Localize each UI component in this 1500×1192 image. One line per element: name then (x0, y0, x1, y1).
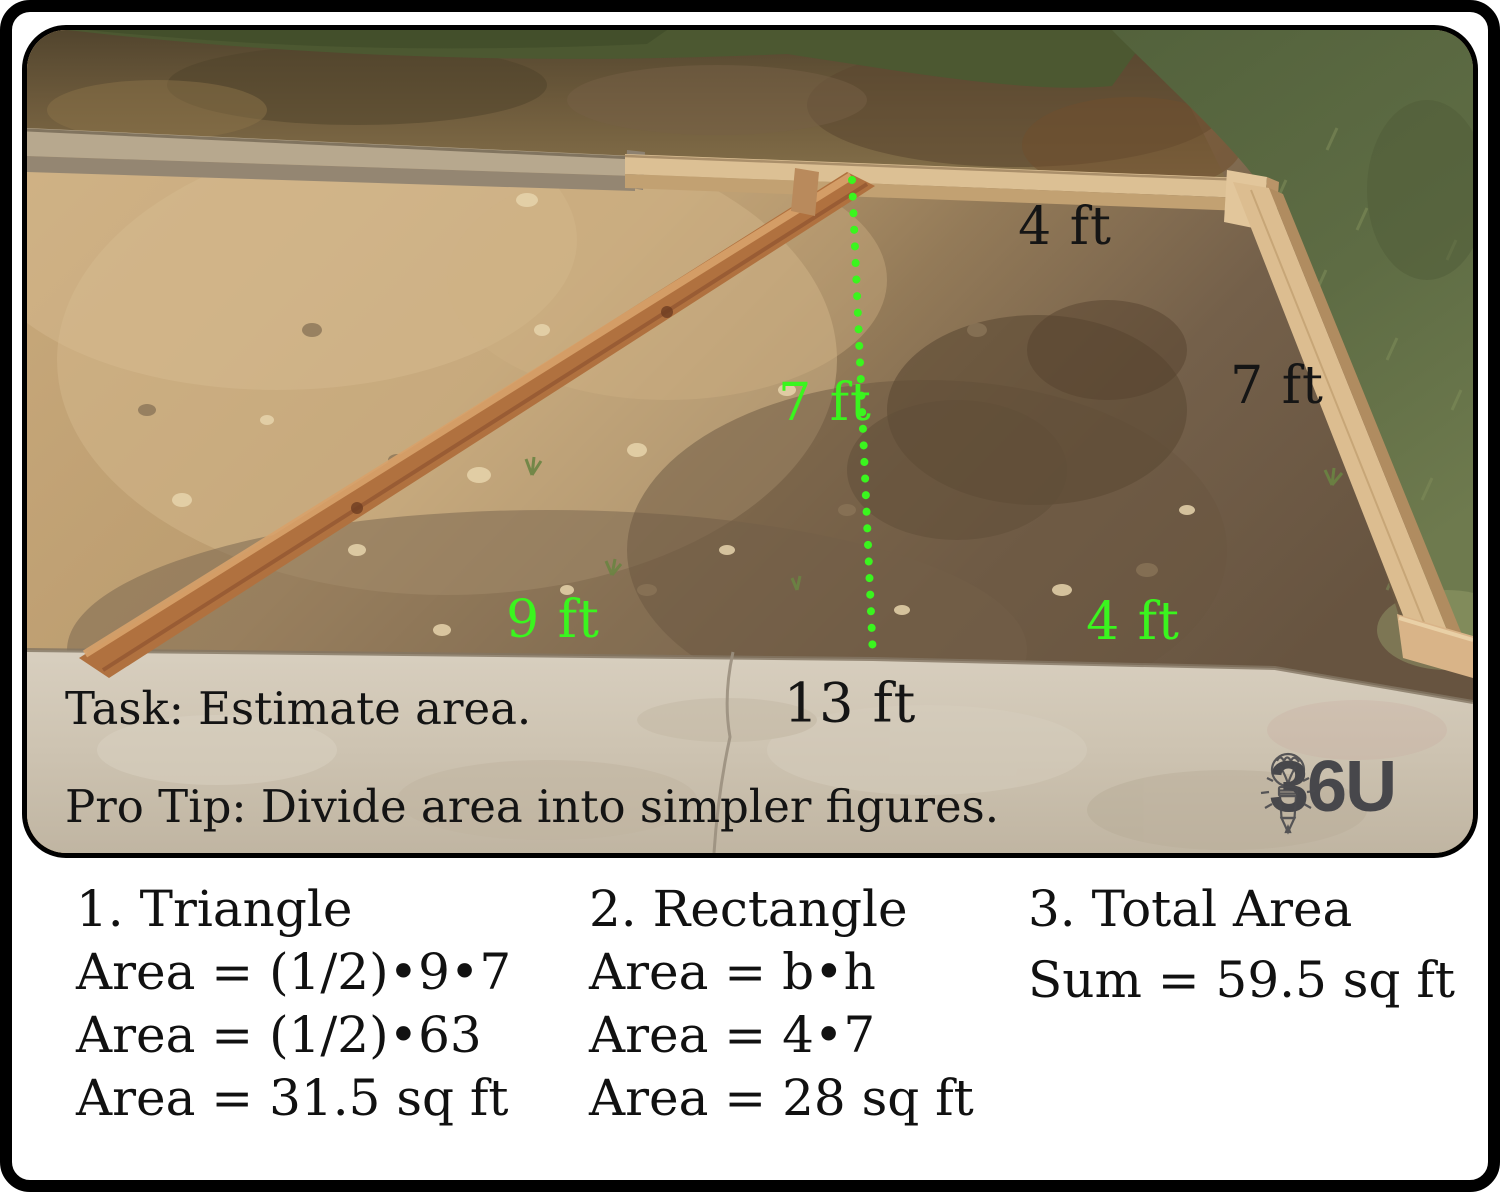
label-total-base: 13 ft (784, 672, 917, 735)
label-rectangle-base: 4 ft (1086, 592, 1180, 652)
solution-column-total: 3. Total Area Sum = 59.5 sq ft (1028, 878, 1455, 1012)
solution-line: Area = 4•7 (589, 1004, 974, 1067)
solution-line: Area = 28 sq ft (589, 1067, 974, 1130)
label-divider-height: 7 ft (778, 373, 872, 433)
protip-text: Pro Tip: Divide area into simpler figure… (65, 780, 999, 833)
site-photo: 4 ft 7 ft 7 ft 9 ft 4 ft 13 ft Task: Est… (22, 25, 1478, 858)
solution-line: Area = (1/2)•9•7 (76, 941, 511, 1004)
solution-column-triangle: 1. Triangle Area = (1/2)•9•7 Area = (1/2… (76, 878, 511, 1130)
label-triangle-base: 9 ft (506, 590, 600, 650)
solution-column-rectangle: 2. Rectangle Area = b•h Area = 4•7 Area … (589, 878, 974, 1130)
column-heading: 3. Total Area (1028, 878, 1455, 941)
column-heading: 2. Rectangle (589, 878, 974, 941)
label-top-width: 4 ft (1018, 197, 1112, 257)
solution-line: Area = b•h (589, 941, 974, 1004)
label-right-side: 7 ft (1230, 356, 1324, 416)
lightbulb-pencil-icon (1259, 746, 1317, 842)
task-text: Task: Estimate area. (65, 682, 531, 735)
logo-36u: 36U (1259, 746, 1395, 828)
solution-line: Sum = 59.5 sq ft (1028, 949, 1455, 1012)
solution-line: Area = (1/2)•63 (76, 1004, 511, 1067)
column-heading: 1. Triangle (76, 878, 511, 941)
solution-line: Area = 31.5 sq ft (76, 1067, 511, 1130)
